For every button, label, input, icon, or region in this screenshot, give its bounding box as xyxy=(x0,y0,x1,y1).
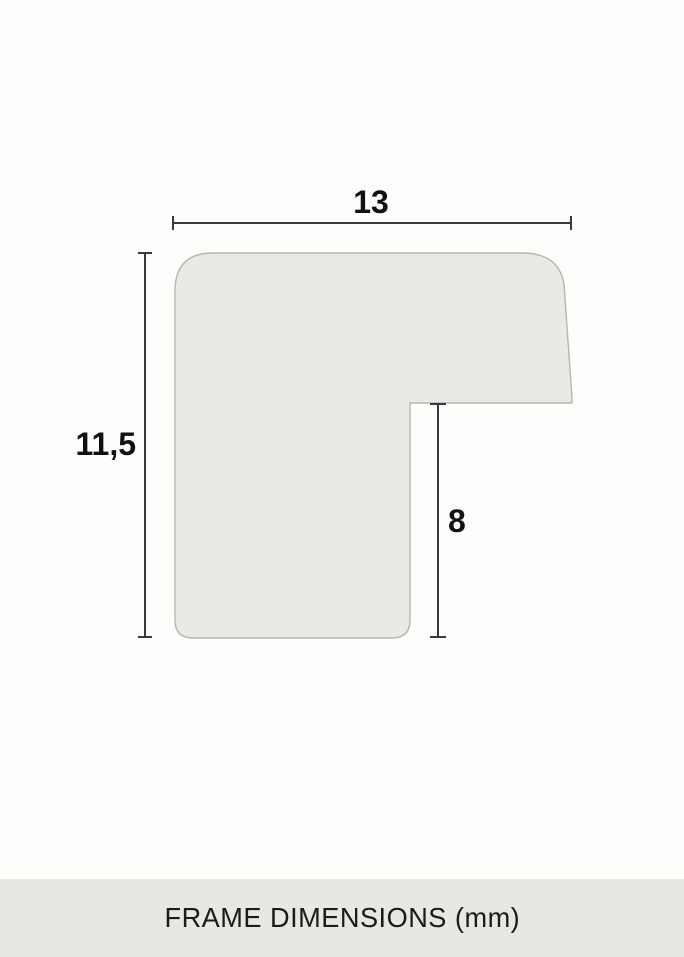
depth-dimension: 8 xyxy=(430,404,466,637)
height-dimension-label: 11,5 xyxy=(75,426,136,462)
footer-bar: FRAME DIMENSIONS (mm) xyxy=(0,879,684,957)
footer-title: FRAME DIMENSIONS (mm) xyxy=(164,902,520,934)
frame-profile-shape xyxy=(175,253,572,638)
depth-dimension-label: 8 xyxy=(448,503,466,539)
frame-dimensions-page: 13 11,5 8 FRAME DIMENSIONS (mm) xyxy=(0,0,684,957)
width-dimension: 13 xyxy=(173,184,571,230)
width-dimension-label: 13 xyxy=(353,184,389,220)
frame-profile-diagram: 13 11,5 8 xyxy=(0,0,684,879)
height-dimension: 11,5 xyxy=(75,253,152,637)
